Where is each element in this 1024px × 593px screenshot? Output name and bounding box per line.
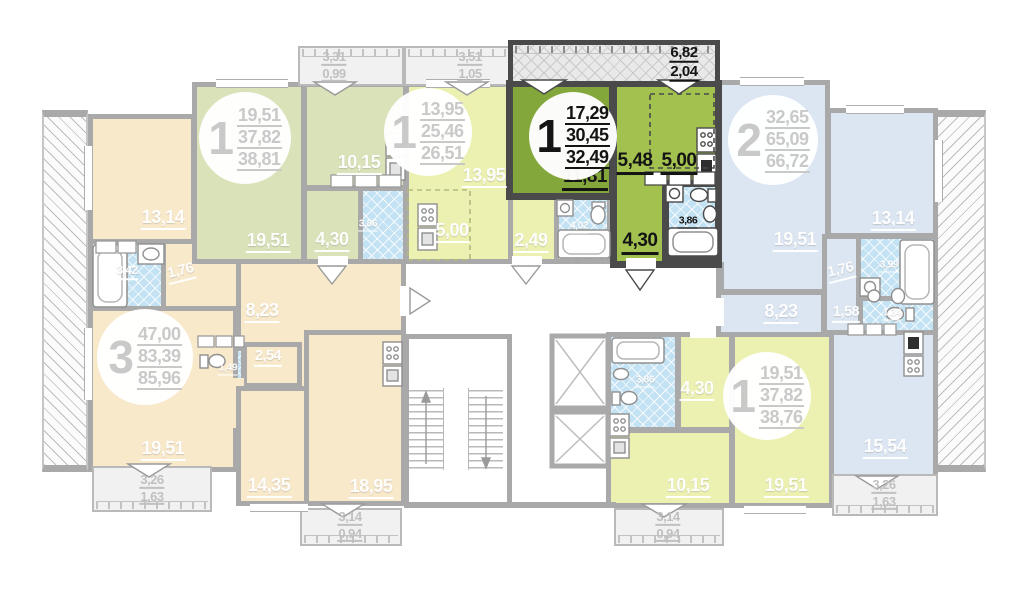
room-area-label-selected: 3,86 — [678, 215, 698, 228]
building-section-hatch-left — [42, 110, 88, 472]
apartment-areas: 19,5137,8238,81 — [237, 105, 282, 171]
room-area-label: 4,30 — [314, 230, 349, 252]
balcony-area-label: 3,261,63 — [139, 473, 164, 505]
apartment-areas: 17,2930,4532,49 — [565, 103, 610, 169]
apartment-number: 1 — [391, 105, 415, 159]
stairs-core — [443, 388, 469, 470]
floor-plan: 13,14 3,42 1,76 8,23 1,49 2,54 19,51 14,… — [0, 0, 1024, 593]
room-area-label: 3,42 — [115, 264, 138, 280]
room-area-label: 8,23 — [244, 301, 279, 323]
hall-2-49 — [508, 194, 560, 264]
apartment-badge-1-lime[interactable]: 1 13,9525,4626,51 — [384, 88, 472, 176]
apartment-areas: 13,9525,4626,51 — [420, 99, 465, 165]
window — [84, 328, 93, 400]
room-area-label: 3,86 — [358, 218, 378, 231]
building-section-hatch-right — [936, 110, 986, 472]
room-area-label: 19,51 — [764, 476, 809, 498]
room-area-label: 13,14 — [141, 208, 186, 230]
room-area-label: 4,02 — [569, 220, 589, 233]
balcony-area-label: 3,511,05 — [457, 50, 482, 82]
apartment-badge-1-selected[interactable]: 1 17,2930,4532,49 — [529, 92, 617, 180]
room-area-label: 1,58 — [832, 305, 860, 323]
hall-4-30 — [302, 186, 364, 264]
room-area-label: 13,95 — [462, 166, 507, 188]
room-area-label: 19,51 — [141, 439, 186, 461]
balcony-area-label-selected: 6,822,04 — [669, 45, 698, 82]
room-area-label: 15,54 — [863, 437, 908, 459]
room-area-label-selected: 5,00 — [661, 151, 698, 175]
apartment-areas: 47,0083,3985,96 — [137, 324, 182, 390]
room-area-label: 19,51 — [246, 231, 291, 253]
room-area-label-selected: 5,48 — [617, 151, 654, 175]
room-area-label: 3,86 — [635, 374, 655, 387]
balcony-area-label: 3,140,94 — [655, 510, 680, 542]
room-area-label-selected: 4,30 — [622, 231, 659, 255]
apartment-badge-3[interactable]: 3 47,0083,3985,96 — [97, 309, 193, 405]
apartment-areas: 32,6565,0966,72 — [765, 107, 810, 173]
window — [216, 79, 288, 88]
apartment-areas: 19,5137,8238,76 — [759, 363, 804, 429]
apartment-number: 1 — [536, 109, 560, 163]
apartment-badge-1-yellow[interactable]: 1 19,5137,8238,76 — [723, 352, 811, 440]
apartment-number: 2 — [736, 113, 760, 167]
window — [744, 505, 806, 514]
window — [934, 140, 943, 202]
balcony-area-label: 3,261,63 — [871, 478, 896, 510]
room-area-label: 10,15 — [666, 476, 711, 498]
room-area-label: 4,30 — [679, 379, 714, 401]
room-area-label: 2,49 — [513, 231, 548, 253]
balcony-area-label: 3,310,99 — [321, 50, 346, 82]
window — [846, 105, 904, 114]
apartment-badge-1-green[interactable]: 1 19,5137,8238,81 — [199, 92, 291, 184]
room-area-label: 5,00 — [434, 221, 469, 243]
room-area-label: 18,95 — [349, 477, 394, 499]
stairs-flight — [409, 390, 443, 470]
kitchen-15-54 — [824, 330, 938, 482]
apartment-badge-2-blue[interactable]: 2 32,6565,0966,72 — [728, 95, 818, 185]
room-area-label: 1,49 — [218, 362, 238, 375]
elevator-icon — [552, 336, 608, 466]
window — [250, 503, 308, 512]
window — [84, 146, 93, 210]
stairs-flight — [469, 390, 503, 470]
room-area-label: 8,23 — [763, 302, 798, 324]
apartment-number: 1 — [208, 111, 232, 165]
room-area-label: 1,34 — [882, 307, 902, 320]
balcony-area-label: 3,140,94 — [337, 510, 362, 542]
room-area-label: 2,54 — [254, 349, 282, 367]
wall-segment — [404, 502, 616, 508]
apartment-number: 1 — [730, 369, 754, 423]
window — [740, 77, 804, 86]
balcony — [298, 46, 404, 86]
room-area-label: 3,99 — [879, 259, 899, 272]
room-area-label: 10,15 — [337, 153, 382, 175]
room-area-label: 14,35 — [247, 476, 292, 498]
apartment-number: 3 — [108, 330, 132, 384]
room-area-label: 13,14 — [871, 209, 916, 231]
room-area-label: 19,51 — [773, 230, 818, 252]
